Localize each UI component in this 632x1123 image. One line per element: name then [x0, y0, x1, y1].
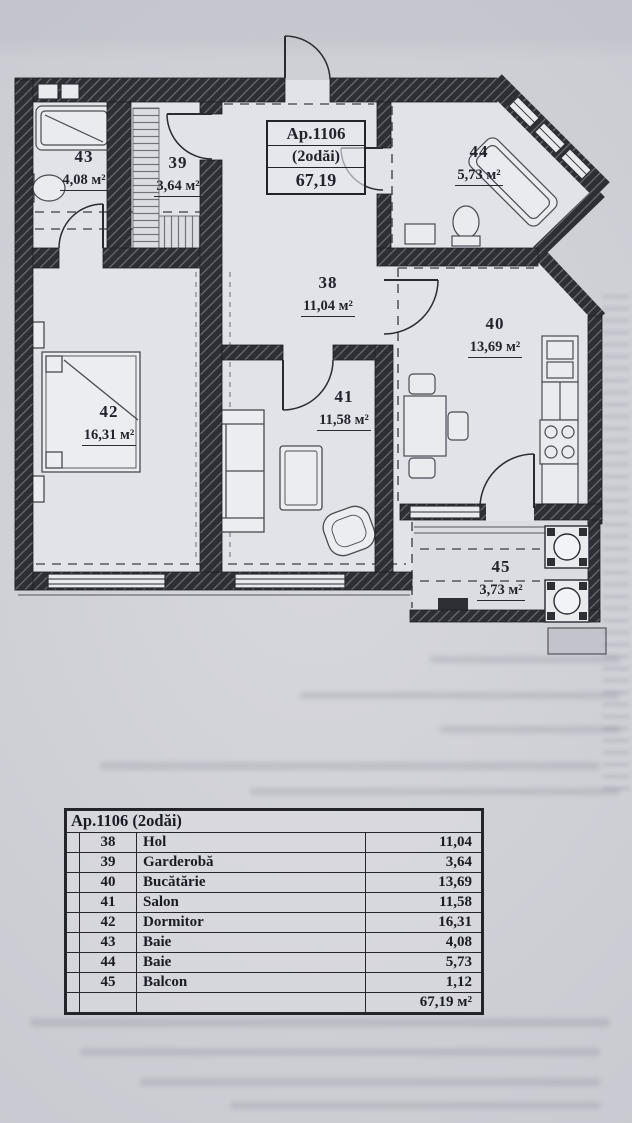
table-row: 40 Bucătărie 13,69 — [67, 873, 482, 893]
room-name-cell: Bucătărie — [137, 873, 366, 893]
room-number-cell: 39 — [80, 853, 137, 873]
room-number: 40 — [447, 313, 543, 334]
room-area: 16,31 м² — [82, 426, 136, 446]
room-area-cell: 5,73 — [366, 953, 482, 973]
room-label-38: 38 11,04 м² — [280, 272, 376, 317]
room-number-cell: 45 — [80, 973, 137, 993]
wall-niche — [38, 84, 58, 99]
wall-42-41 — [200, 160, 222, 572]
room-number-cell: 40 — [80, 873, 137, 893]
room-number: 44 — [431, 141, 527, 162]
room-number: 38 — [280, 272, 376, 293]
room-name-cell: Balcon — [137, 973, 366, 993]
area-legend-table: Ap.1106 (2odăi) 38 Hol 11,04 39 Garderob… — [64, 808, 484, 1015]
bleed-smudge — [100, 762, 600, 770]
wall-strip-right — [103, 248, 212, 268]
room-number-cell: 42 — [80, 913, 137, 933]
entrance-door — [285, 36, 330, 79]
kitchen-counter-low — [542, 464, 578, 504]
structure-stub — [548, 628, 606, 654]
room-area-cell: 3,64 — [366, 853, 482, 873]
wall-vestibule-top — [377, 102, 391, 148]
column-icon — [554, 588, 580, 614]
bleed-column — [603, 295, 629, 795]
stove-icon — [540, 420, 578, 464]
table-row: 39 Garderobă 3,64 — [67, 853, 482, 873]
dining-table-icon — [404, 396, 446, 456]
bleed-smudge — [440, 726, 620, 733]
chair-icon — [409, 374, 435, 394]
room-name-cell: Garderobă — [137, 853, 366, 873]
floor-plan: Ap.1106 (2odăi) 67,19 38 11,04 м² 39 3,6… — [0, 0, 632, 700]
room-label-40: 40 13,69 м² — [447, 313, 543, 358]
wall-vestibule-bottom — [377, 194, 391, 250]
room-number: 39 — [130, 152, 226, 173]
room-label-44: 44 5,73 м² — [431, 141, 527, 186]
wall-41-east — [375, 345, 393, 572]
wall-44-south — [377, 248, 538, 266]
room-label-43: 43 4,08 м² — [36, 146, 132, 191]
room-number-cell: 44 — [80, 953, 137, 973]
table-row: 45 Balcon 1,12 — [67, 973, 482, 993]
room-number-cell: 43 — [80, 933, 137, 953]
wall-top-right — [330, 78, 497, 102]
table-total-row: 67,19 м² — [67, 993, 482, 1013]
washbasin-icon — [405, 224, 435, 244]
room-area: 3,73 м² — [477, 581, 524, 601]
room-area-cell: 11,04 — [366, 833, 482, 853]
room-area-cell: 1,12 — [366, 973, 482, 993]
window-salon — [235, 574, 345, 588]
coffee-table-icon — [280, 446, 322, 510]
room-label-42: 42 16,31 м² — [61, 401, 157, 446]
room-area: 13,69 м² — [468, 338, 522, 358]
room-area: 11,04 м² — [301, 297, 355, 317]
window-bedroom — [48, 574, 165, 588]
room-area: 4,08 м² — [60, 171, 107, 191]
bleed-smudge — [430, 656, 620, 663]
room-area-cell: 16,31 — [366, 913, 482, 933]
wall-v2-stub — [200, 102, 222, 114]
room-name-cell: Baie — [137, 933, 366, 953]
legend-header-row: Ap.1106 (2odăi) — [67, 811, 482, 833]
room-number: 41 — [296, 386, 392, 407]
total-area-cell: 67,19 м² — [366, 993, 482, 1013]
wall-right — [588, 316, 602, 524]
bleed-smudge — [30, 1018, 610, 1027]
room-name-cell: Baie — [137, 953, 366, 973]
apartment-total-area: 67,19 — [268, 168, 364, 193]
wall-left — [15, 80, 33, 590]
room-label-41: 41 11,58 м² — [296, 386, 392, 431]
table-row: 41 Salon 11,58 — [67, 893, 482, 913]
toilet-icon — [453, 206, 479, 238]
room-name-cell: Hol — [137, 833, 366, 853]
table-row: 43 Baie 4,08 — [67, 933, 482, 953]
room-area: 3,64 м² — [154, 177, 201, 197]
wall-balcony-right — [588, 520, 600, 620]
wall-38-41-left — [222, 345, 283, 360]
bleed-smudge — [250, 788, 620, 795]
wall-38-41-right — [333, 345, 377, 360]
room-area-cell: 4,08 — [366, 933, 482, 953]
room-number-cell: 41 — [80, 893, 137, 913]
wall-strip-left — [33, 248, 59, 268]
bleed-smudge — [230, 1102, 600, 1109]
column-icon — [554, 534, 580, 560]
legend-header: Ap.1106 (2odăi) — [67, 811, 482, 833]
balcony-door-opening — [486, 503, 534, 521]
apartment-rooms: (2odăi) — [268, 146, 364, 168]
room-number: 42 — [61, 401, 157, 422]
apartment-title-box: Ap.1106 (2odăi) 67,19 — [266, 120, 366, 195]
room-area-cell: 13,69 — [366, 873, 482, 893]
room-name-cell: Salon — [137, 893, 366, 913]
table-row: 38 Hol 11,04 — [67, 833, 482, 853]
room-label-39: 39 3,64 м² — [130, 152, 226, 197]
chair-icon — [409, 458, 435, 478]
room-area: 5,73 м² — [455, 166, 502, 186]
wall-niche — [61, 84, 79, 99]
room-number: 43 — [36, 146, 132, 167]
room-number-cell: 38 — [80, 833, 137, 853]
chair-icon — [448, 412, 468, 440]
table-row: 44 Baie 5,73 — [67, 953, 482, 973]
room-label-45: 45 3,73 м² — [453, 556, 549, 601]
room-area: 11,58 м² — [317, 411, 371, 431]
room-number: 45 — [453, 556, 549, 577]
bleed-smudge — [80, 1048, 600, 1056]
room-area-cell: 11,58 — [366, 893, 482, 913]
apartment-number: Ap.1106 — [268, 122, 364, 146]
room-name-cell: Dormitor — [137, 913, 366, 933]
bleed-smudge — [140, 1078, 600, 1086]
bleed-smudge — [300, 692, 620, 699]
toilet-tank-icon — [452, 236, 480, 246]
table-row: 42 Dormitor 16,31 — [67, 913, 482, 933]
